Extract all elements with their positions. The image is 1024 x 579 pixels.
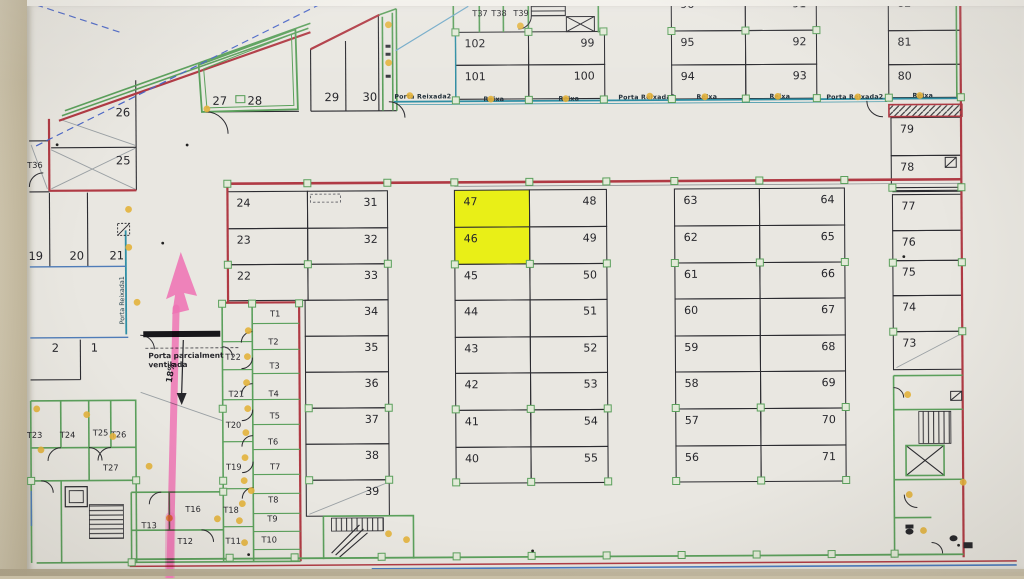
photo-bottom-shadow [0, 569, 1024, 576]
reference-dot [902, 255, 905, 258]
column-marker [958, 259, 965, 266]
parking-space-label: 75 [902, 266, 916, 279]
column-marker [668, 27, 675, 34]
parking-space-label: 66 [821, 267, 835, 280]
sink-icon [964, 542, 973, 548]
area-label: 29 [324, 90, 339, 104]
column-marker [742, 95, 749, 102]
parking-space-label: 50 [583, 268, 597, 281]
room-label: T2 [267, 336, 278, 346]
column-marker [758, 477, 765, 484]
column-marker [756, 259, 763, 266]
column-marker [600, 28, 607, 35]
parking-space-label: 35 [364, 341, 378, 354]
room-label: T21 [228, 389, 244, 399]
door-marker-dot [244, 353, 251, 360]
room-label: T27 [102, 462, 118, 472]
labels-layer: 1029910110096919592949382818079787776757… [23, 0, 936, 547]
parking-space-label: 54 [584, 414, 598, 427]
door-marker-dot [239, 500, 246, 507]
room-label: T4 [268, 388, 279, 398]
door-marker-dot [854, 93, 861, 100]
room-label: T39 [512, 8, 528, 18]
reference-dot [186, 144, 189, 147]
room-label: T8 [267, 494, 278, 504]
column-marker [304, 180, 311, 187]
parking-space-label: 76 [902, 236, 916, 249]
reference-dot [531, 549, 534, 552]
column-marker [249, 300, 256, 307]
column-marker [386, 476, 393, 483]
column-marker [668, 95, 675, 102]
column-marker [219, 300, 226, 307]
column-marker [305, 405, 312, 412]
column-marker [885, 94, 892, 101]
parking-space-label: 40 [465, 452, 479, 465]
parking-space-label: 39 [365, 485, 379, 498]
parking-space-label: 80 [898, 70, 912, 83]
area-label: 27 [212, 94, 227, 108]
parking-cells-layer [226, 0, 963, 517]
area-label: 28 [247, 94, 262, 108]
column-marker [813, 27, 820, 34]
door-marker-dot [646, 93, 653, 100]
column-marker [603, 260, 610, 267]
misc-symbols [63, 41, 973, 554]
parking-space-label: 43 [464, 342, 478, 355]
door-marker-dot [916, 92, 923, 99]
door-marker-dot [385, 59, 392, 66]
photo-of-floor-plan: 1029910110096919592949382818079787776757… [0, 0, 1024, 576]
column-marker [133, 477, 140, 484]
column-marker [28, 477, 35, 484]
parking-space-label: 53 [584, 377, 598, 390]
column-marker [526, 178, 533, 185]
parking-space-label: 73 [902, 337, 916, 350]
toilet-icon [905, 529, 913, 535]
interior-walls [28, 11, 963, 559]
door-marker-dot [244, 405, 251, 412]
column-marker [452, 29, 459, 36]
column-marker [452, 97, 459, 104]
door-marker-dot [562, 95, 569, 102]
column-marker [756, 177, 763, 184]
room-label: T5 [269, 410, 280, 420]
door-marker-dot [906, 491, 913, 498]
room-label: T36 [26, 160, 42, 170]
column-marker [453, 553, 460, 560]
door-marker-dot [487, 96, 494, 103]
parking-space-label: 38 [365, 449, 379, 462]
parking-space-label: 34 [364, 305, 378, 318]
parking-space-label: 95 [680, 36, 694, 49]
column-marker [890, 328, 897, 335]
door-marker-dot [203, 105, 210, 112]
reference-dot [247, 553, 250, 556]
column-marker [813, 95, 820, 102]
toilet-icon [950, 535, 958, 541]
parking-space-label: 59 [684, 341, 698, 354]
parking-space-label: 37 [365, 413, 379, 426]
column-marker [604, 405, 611, 412]
parking-space-label: 102 [464, 37, 485, 50]
column-marker [224, 180, 231, 187]
column-marker [841, 258, 848, 265]
parking-space-label: 93 [793, 69, 807, 82]
column-marker [291, 554, 298, 561]
parking-space-label: 70 [822, 413, 836, 426]
door-marker-dot [33, 405, 40, 412]
photo-left-edge [0, 0, 27, 576]
column-marker [891, 550, 898, 557]
floor-plan-drawing: 1029910110096919592949382818079787776757… [0, 0, 1024, 579]
area-label: 25 [116, 153, 131, 167]
door-marker-dot [385, 21, 392, 28]
column-marker [378, 553, 385, 560]
column-marker [526, 260, 533, 267]
room-label: T37 [471, 8, 487, 18]
column-marker [128, 559, 135, 566]
area-label: 19 [28, 249, 43, 263]
column-marker [528, 552, 535, 559]
column-marker [528, 478, 535, 485]
area-label: 30 [362, 90, 377, 104]
parking-space-label: 32 [364, 233, 378, 246]
column-marker [757, 404, 764, 411]
door-label: Porta Reixada2 [394, 93, 451, 100]
column-marker [453, 479, 460, 486]
column-marker [451, 261, 458, 268]
column-marker [527, 405, 534, 412]
porta-reixada1-label: Porta Reixada1 [118, 276, 126, 324]
column-marker [296, 300, 303, 307]
door-marker-dot [83, 411, 90, 418]
parking-space-label: 78 [900, 161, 914, 174]
parking-space-label: 68 [821, 340, 835, 353]
parking-space-label: 63 [683, 194, 697, 207]
parking-space-label: 41 [465, 415, 479, 428]
parking-space-label: 60 [684, 304, 698, 317]
column-marker [958, 184, 965, 191]
parking-space-label: 42 [465, 378, 479, 391]
door-marker-dot [920, 527, 927, 534]
column-marker [451, 179, 458, 186]
reference-dot [161, 242, 164, 245]
room-label: T18 [222, 505, 238, 515]
door-marker-dot [38, 446, 45, 453]
reference-dot [56, 143, 59, 146]
room-label: T16 [184, 504, 200, 514]
column-marker [603, 552, 610, 559]
parking-space-label: 23 [237, 234, 251, 247]
column-marker [603, 178, 610, 185]
room-label: T10 [261, 534, 277, 544]
column-marker [306, 477, 313, 484]
solid-door-bar [143, 331, 220, 337]
parking-space-label: 100 [574, 69, 595, 82]
room-label: T3 [268, 360, 279, 370]
room-label: T1 [269, 308, 280, 318]
parking-space-label: 65 [821, 230, 835, 243]
room-label: T22 [224, 352, 240, 362]
door-marker-dot [904, 391, 911, 398]
parking-space-label: 64 [820, 193, 834, 206]
door-marker-dot [134, 299, 141, 306]
reference-dot [957, 544, 960, 547]
column-marker [220, 488, 227, 495]
door-marker-dot [774, 93, 781, 100]
column-marker [600, 96, 607, 103]
photo-top-edge [0, 0, 1024, 6]
column-marker [671, 259, 678, 266]
room-label: T7 [269, 461, 280, 471]
column-markers-layer [25, 26, 967, 567]
door-marker-dot [109, 433, 116, 440]
room-label: T19 [225, 462, 241, 472]
door-marker-dot [236, 517, 243, 524]
parking-space-label: 81 [897, 36, 911, 49]
door-marker-dot [517, 23, 524, 30]
parking-space-label: 56 [685, 451, 699, 464]
door-marker-dot [406, 92, 413, 99]
column-marker [828, 551, 835, 558]
parking-space-label: 92 [792, 35, 806, 48]
parking-space-label: 61 [684, 268, 698, 281]
parking-space-label: 57 [685, 414, 699, 427]
parking-space-label: 67 [821, 303, 835, 316]
door-marker-dot [242, 429, 249, 436]
column-marker [753, 551, 760, 558]
door-marker-dot [248, 487, 255, 494]
room-label: T38 [490, 8, 506, 18]
door-marker-dot [960, 479, 967, 486]
area-label: 2 [52, 341, 59, 355]
room-label: T23 [26, 430, 42, 440]
column-marker [304, 261, 311, 268]
parking-space-label: 24 [236, 197, 250, 210]
column-marker [525, 28, 532, 35]
parking-space-label: 94 [681, 70, 695, 83]
parking-space-label: 36 [365, 377, 379, 390]
area-label: 26 [116, 105, 131, 119]
column-marker [671, 177, 678, 184]
parking-space-label: 58 [685, 377, 699, 390]
column-marker [385, 404, 392, 411]
parking-space-label: 55 [584, 451, 598, 464]
parking-space-label: 49 [583, 231, 597, 244]
column-marker [957, 94, 964, 101]
parking-space-label: 22 [237, 270, 251, 283]
room-label: T25 [92, 427, 108, 437]
parking-space-label: 47 [463, 195, 477, 208]
column-marker [384, 179, 391, 186]
column-marker [384, 260, 391, 267]
parking-space-label: 33 [364, 269, 378, 282]
room-label: T6 [267, 436, 278, 446]
door-marker-dot [243, 379, 250, 386]
column-marker [842, 403, 849, 410]
column-marker [843, 476, 850, 483]
parking-space-label: 51 [583, 304, 597, 317]
column-marker [452, 406, 459, 413]
parking-space-label: 31 [363, 196, 377, 209]
parking-space-label: 48 [582, 194, 596, 207]
parking-space-label: 101 [465, 70, 486, 83]
door-marker-dot [146, 463, 153, 470]
column-marker [605, 478, 612, 485]
parking-space-label: 45 [464, 269, 478, 282]
vent-note-line1: Porta parcialment [148, 351, 224, 360]
column-marker [889, 259, 896, 266]
door-marker-dot [403, 536, 410, 543]
door-marker-dot [241, 477, 248, 484]
parking-space-label: 74 [902, 301, 916, 314]
column-marker [226, 554, 233, 561]
door-marker-dot [242, 454, 249, 461]
area-label: 20 [69, 249, 84, 263]
partition-walls [28, 0, 963, 563]
parking-space-label: 71 [822, 450, 836, 463]
room-label: T12 [177, 536, 193, 546]
parking-space-label: 52 [583, 341, 597, 354]
room-label: T24 [59, 430, 75, 440]
door-marker-dot [125, 206, 132, 213]
column-marker [525, 96, 532, 103]
room-label: T9 [266, 513, 277, 523]
parking-space-label: 79 [900, 123, 914, 136]
room-label: T11 [225, 536, 241, 546]
door-marker-dot [125, 244, 132, 251]
parking-space-label: 99 [580, 36, 594, 49]
door-marker-dot [241, 539, 248, 546]
column-marker [672, 404, 679, 411]
parking-space-label: 44 [464, 305, 478, 318]
column-marker [841, 176, 848, 183]
column-marker [889, 184, 896, 191]
parking-space-label: 46 [464, 232, 478, 245]
door-marker-dot [214, 515, 221, 522]
elevator-icon [65, 487, 87, 507]
area-label: 21 [109, 248, 124, 262]
area-label: 1 [91, 341, 98, 355]
column-marker [742, 27, 749, 34]
room-label: T13 [140, 520, 156, 530]
column-marker [220, 477, 227, 484]
column-marker [959, 328, 966, 335]
door-marker-dot [245, 327, 252, 334]
column-marker [678, 551, 685, 558]
column-marker [673, 477, 680, 484]
door-marker-dot [385, 530, 392, 537]
column-marker [219, 405, 226, 412]
parking-space-label: 69 [822, 376, 836, 389]
column-marker [224, 261, 231, 268]
door-marker-dot [701, 93, 708, 100]
room-label: T20 [225, 420, 241, 430]
parking-space-label: 77 [901, 200, 915, 213]
parking-space-label: 62 [684, 231, 698, 244]
